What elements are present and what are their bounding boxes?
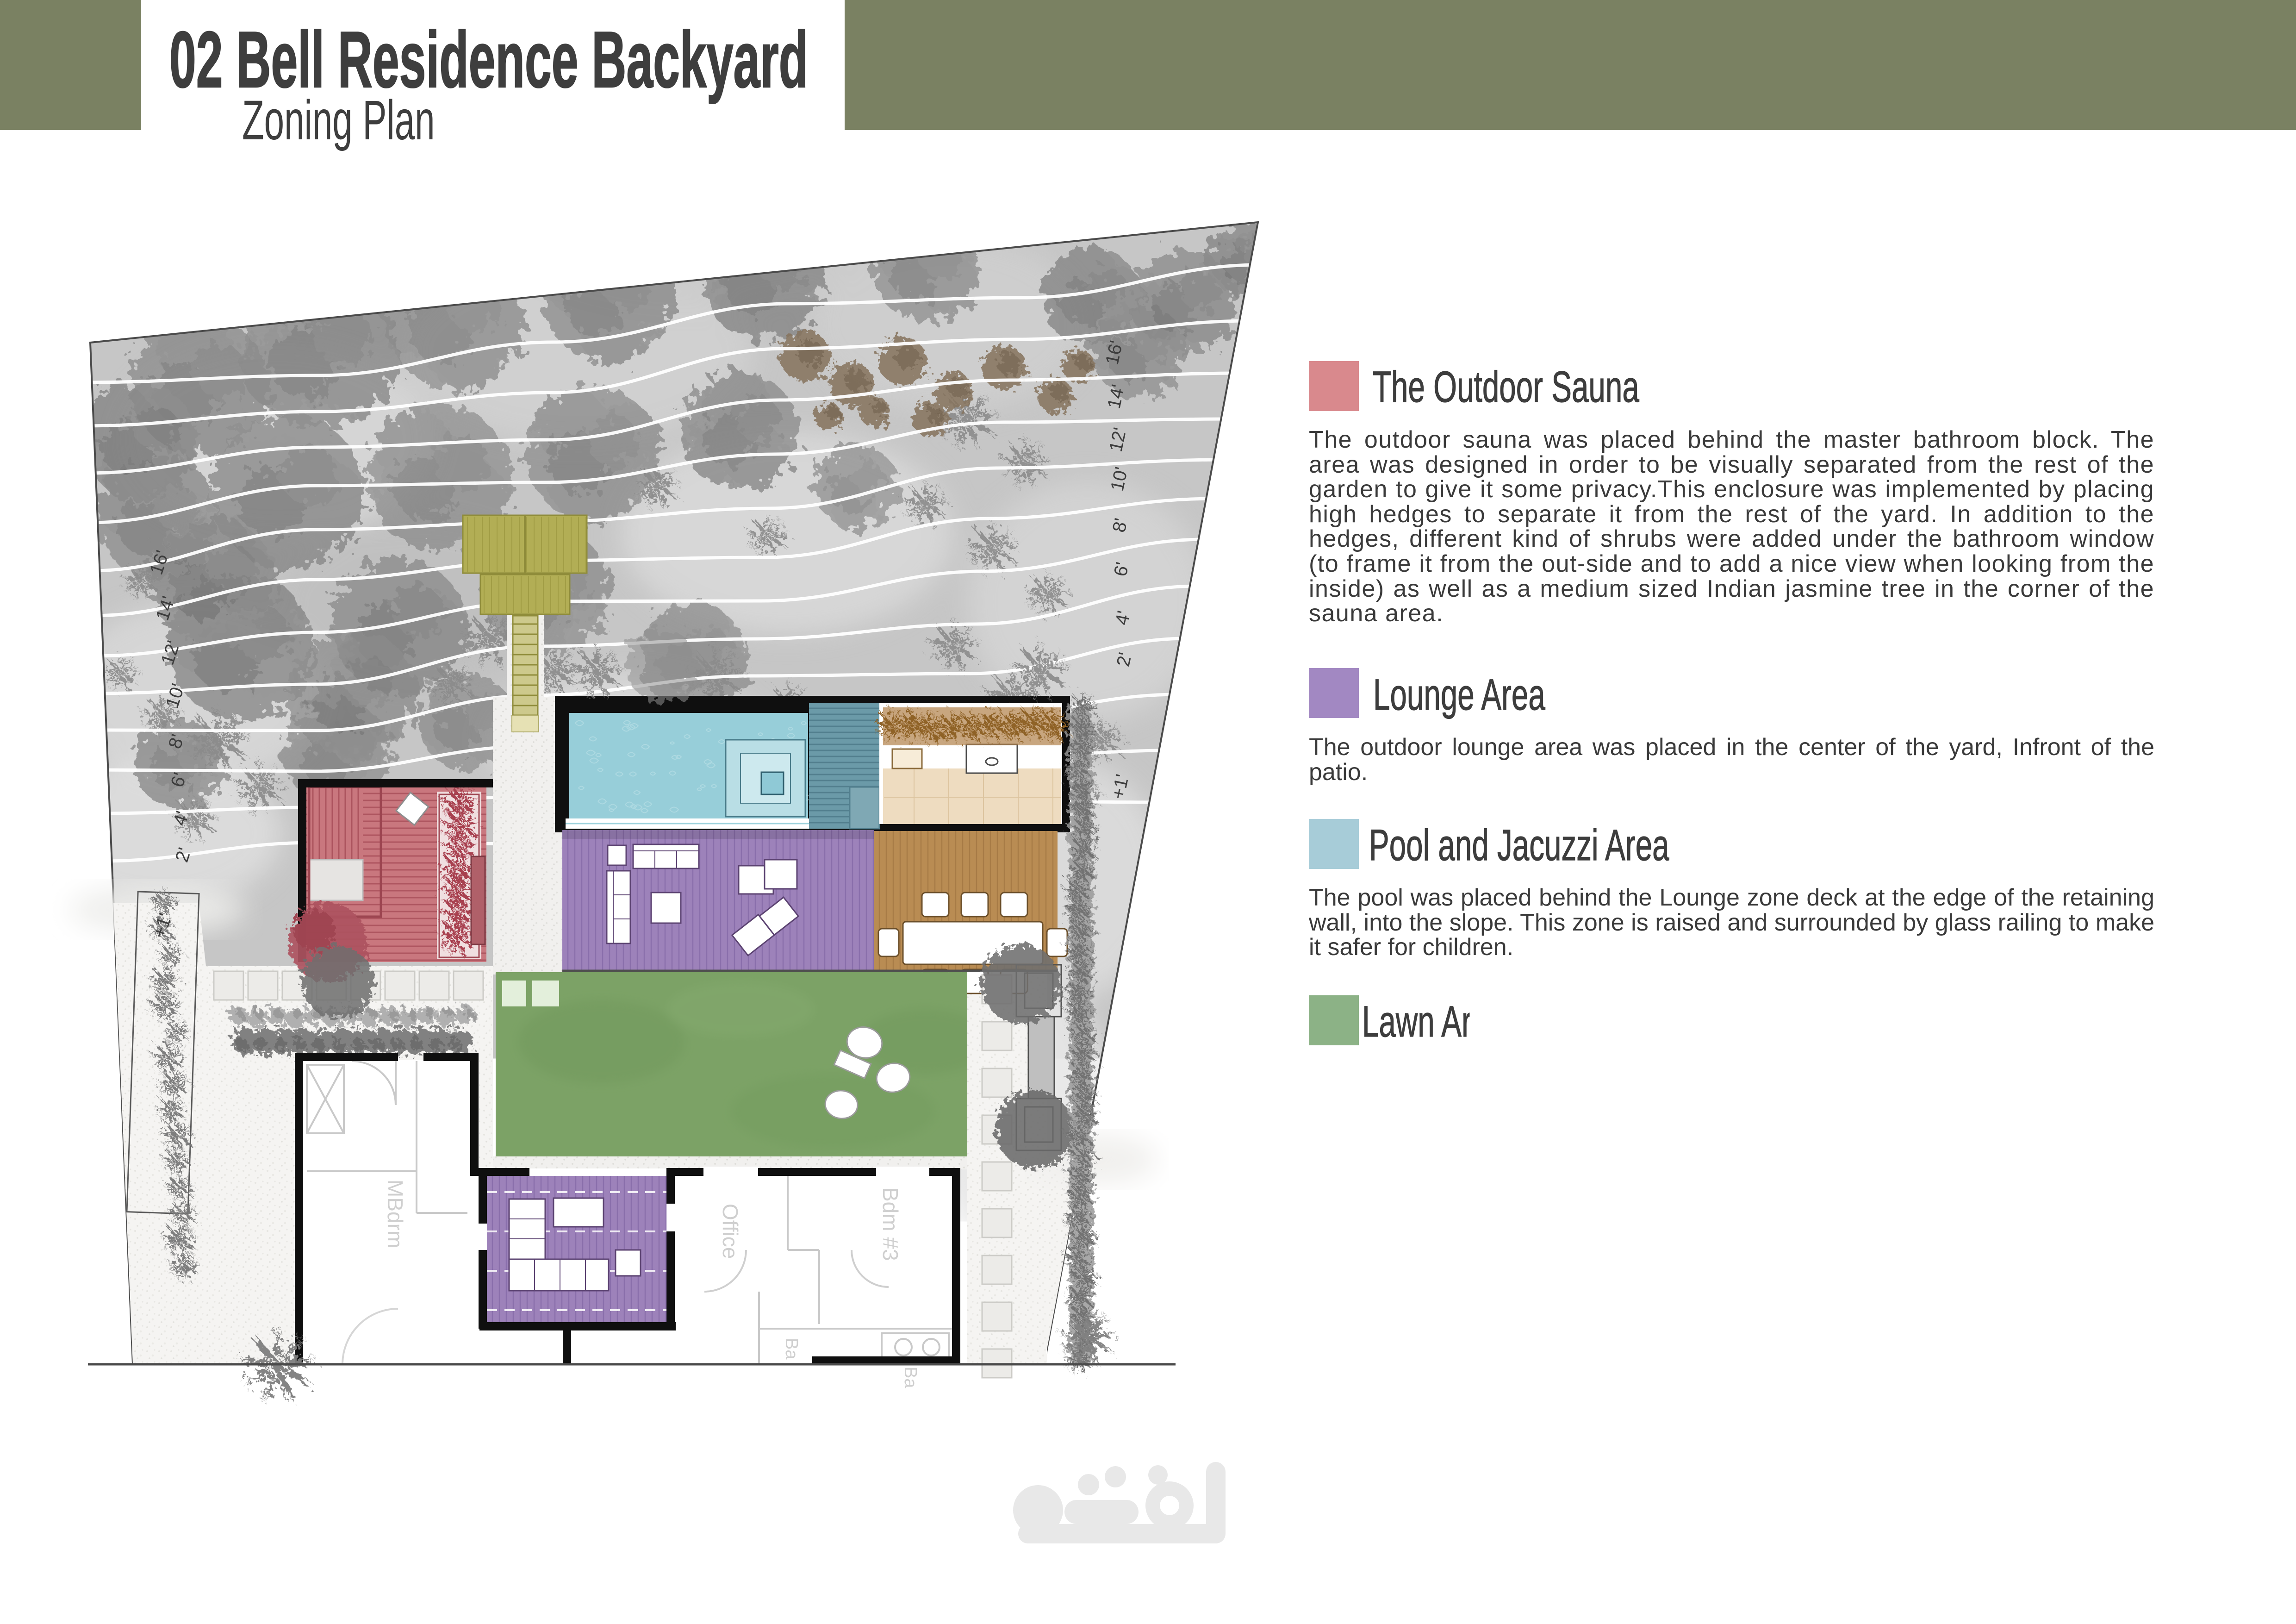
svg-text:Ba: Ba	[782, 1338, 801, 1360]
svg-text:Ba: Ba	[901, 1367, 920, 1388]
svg-text:Bdm #3: Bdm #3	[878, 1187, 902, 1261]
svg-text:Office: Office	[718, 1204, 742, 1259]
svg-text:MBdrm: MBdrm	[383, 1180, 407, 1248]
